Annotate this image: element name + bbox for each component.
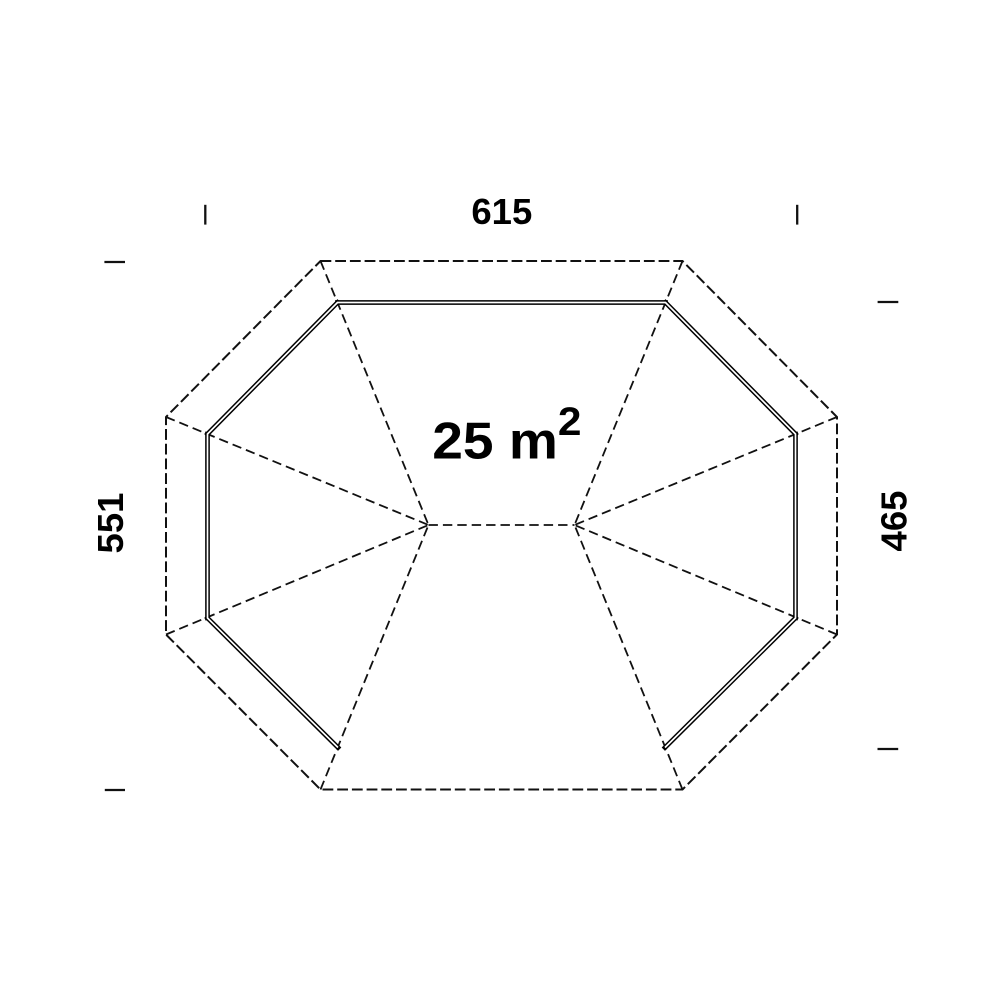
svg-text:25 m2: 25 m2 <box>432 399 581 470</box>
svg-text:465: 465 <box>874 491 915 552</box>
svg-text:615: 615 <box>471 191 532 232</box>
svg-text:551: 551 <box>90 493 131 554</box>
